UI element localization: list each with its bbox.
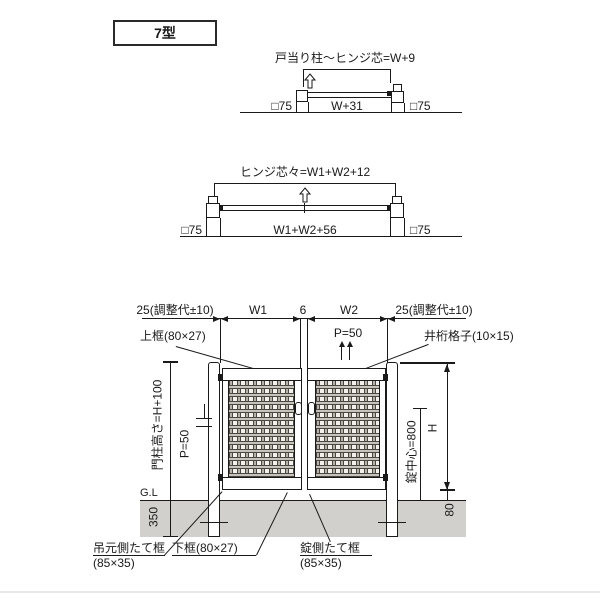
top-rail-label: 上框(80×27) bbox=[140, 329, 206, 343]
extension-line bbox=[220, 218, 221, 236]
callout-underline bbox=[93, 555, 165, 556]
gap-dim-label: 6 bbox=[300, 303, 307, 317]
hinge-post-plan bbox=[390, 203, 404, 218]
gate-dimension-drawing: 7型 戸当り柱～ヒンジ芯=W+9 □75 W+31 □75 ヒンジ芯々=W1+W… bbox=[0, 0, 600, 599]
lock-center-label: 錠中心=800 bbox=[406, 420, 419, 483]
gate-handle-left bbox=[295, 402, 302, 415]
callout-underline bbox=[172, 555, 256, 556]
height-label: H bbox=[427, 424, 440, 433]
post-size-label: □75 bbox=[160, 223, 202, 237]
dim-arrow-icon bbox=[308, 316, 315, 322]
dimension-line bbox=[142, 318, 466, 319]
dim-arrow-icon bbox=[221, 316, 228, 322]
gate-leaf-right bbox=[307, 368, 386, 490]
ground-line bbox=[140, 500, 466, 502]
post-height-label: 門柱高さ=H+100 bbox=[152, 380, 165, 471]
post-size-label: □75 bbox=[252, 99, 292, 113]
gate-handle-right bbox=[308, 402, 315, 415]
hinge-mark bbox=[218, 374, 223, 381]
post-size-label: □75 bbox=[410, 99, 431, 113]
dimension-line bbox=[170, 362, 171, 537]
extension-line bbox=[300, 318, 301, 368]
dimension-line bbox=[447, 490, 448, 500]
page-separator bbox=[0, 591, 600, 593]
pitch-left-label: P=50 bbox=[179, 430, 192, 458]
pitch-arrow bbox=[341, 346, 342, 360]
dim-arrow-icon bbox=[444, 364, 450, 372]
post-embed-tick bbox=[200, 522, 228, 523]
gate-post-right bbox=[386, 362, 398, 537]
dimension-line bbox=[303, 69, 391, 70]
doorstop-post-plan bbox=[391, 91, 404, 103]
swing-direction-icon bbox=[304, 73, 316, 89]
bottom-rail-line bbox=[223, 477, 301, 478]
extension-line bbox=[387, 318, 388, 363]
plan-single-dim-label: 戸当り柱～ヒンジ芯=W+9 bbox=[275, 51, 415, 65]
extension-line bbox=[390, 69, 391, 83]
dim-arrow-icon bbox=[380, 316, 387, 322]
extension-line bbox=[214, 183, 215, 196]
dimension-line bbox=[214, 183, 396, 184]
dim-arrow-icon bbox=[293, 316, 300, 322]
gate-post-left bbox=[208, 362, 220, 537]
w2-dim-label: W2 bbox=[340, 303, 358, 317]
dim-tick bbox=[196, 426, 212, 427]
extension-line bbox=[296, 102, 297, 112]
extension-line bbox=[395, 183, 396, 196]
swing-direction-icon bbox=[299, 187, 311, 203]
hinge-mark bbox=[383, 474, 388, 481]
dim-arrow-icon bbox=[388, 316, 395, 322]
model-title: 7型 bbox=[154, 23, 176, 43]
dimension-line bbox=[420, 408, 421, 500]
dim-tick bbox=[163, 361, 178, 362]
meeting-stile-mark bbox=[304, 203, 305, 213]
width-dim-label: W+31 bbox=[331, 99, 363, 113]
dim-arrow-icon bbox=[213, 316, 220, 322]
lock-stile-size-label: (85×35) bbox=[300, 556, 342, 570]
extension-line bbox=[308, 102, 309, 112]
post-embed-tick bbox=[378, 522, 406, 523]
bottom-rail-label: 下框(80×27) bbox=[172, 541, 238, 555]
pitch-arrow bbox=[349, 346, 350, 360]
dim-tick bbox=[196, 418, 212, 419]
ground-level-label: G.L bbox=[140, 486, 158, 500]
hinge-mark bbox=[383, 374, 388, 381]
lock-stile-line bbox=[294, 380, 295, 478]
up-arrow-icon bbox=[347, 341, 353, 347]
extension-line bbox=[391, 103, 392, 112]
hinge-mark bbox=[219, 206, 223, 210]
hinge-stile-line bbox=[379, 380, 380, 478]
hinge-post-plan bbox=[206, 203, 220, 218]
extension-line bbox=[220, 318, 221, 363]
gate-leaf-left bbox=[222, 368, 302, 490]
extension-line bbox=[390, 218, 391, 236]
gate-leaf-plan bbox=[308, 92, 392, 98]
doorstop-post-cap bbox=[393, 84, 402, 92]
hinge-mark bbox=[218, 474, 223, 481]
adjustment-dim-label: 25(調整代±10) bbox=[395, 303, 472, 317]
lock-stile-label: 錠側たて框 bbox=[300, 541, 360, 555]
hinge-stile-size-label: (85×35) bbox=[93, 556, 135, 570]
grid-lattice-panel bbox=[229, 381, 294, 477]
hinge-mark bbox=[387, 206, 391, 210]
embed-depth-label: 350 bbox=[148, 507, 161, 527]
post-size-label: □75 bbox=[410, 223, 431, 237]
grid-label: 井桁格子(10×15) bbox=[424, 329, 514, 343]
hinge-stile-plan bbox=[296, 90, 308, 102]
w1-dim-label: W1 bbox=[249, 303, 267, 317]
model-title-box: 7型 bbox=[113, 20, 217, 46]
up-arrow-icon bbox=[339, 341, 345, 347]
bottom-gap-label: 80 bbox=[444, 503, 457, 516]
bottom-rail-line bbox=[308, 477, 385, 478]
extension-line bbox=[206, 218, 207, 236]
plan-double-dim-label: ヒンジ芯々=W1+W2+12 bbox=[240, 165, 370, 179]
dimension-line bbox=[447, 364, 448, 490]
extension-line bbox=[307, 318, 308, 368]
dim-tick bbox=[413, 408, 427, 409]
extension-line bbox=[404, 103, 405, 112]
callout-underline bbox=[300, 555, 372, 556]
width-dim-label: W1+W2+56 bbox=[273, 223, 336, 237]
extension-line bbox=[404, 218, 405, 236]
extension-line bbox=[204, 404, 205, 418]
pitch-top-label: P=50 bbox=[334, 326, 362, 340]
ground-hatch bbox=[140, 501, 466, 537]
hinge-stile-label: 吊元側たて框 bbox=[93, 541, 165, 555]
adjustment-dim-label: 25(調整代±10) bbox=[136, 303, 213, 317]
grid-lattice-panel bbox=[316, 381, 379, 477]
dim-tick bbox=[163, 536, 178, 537]
